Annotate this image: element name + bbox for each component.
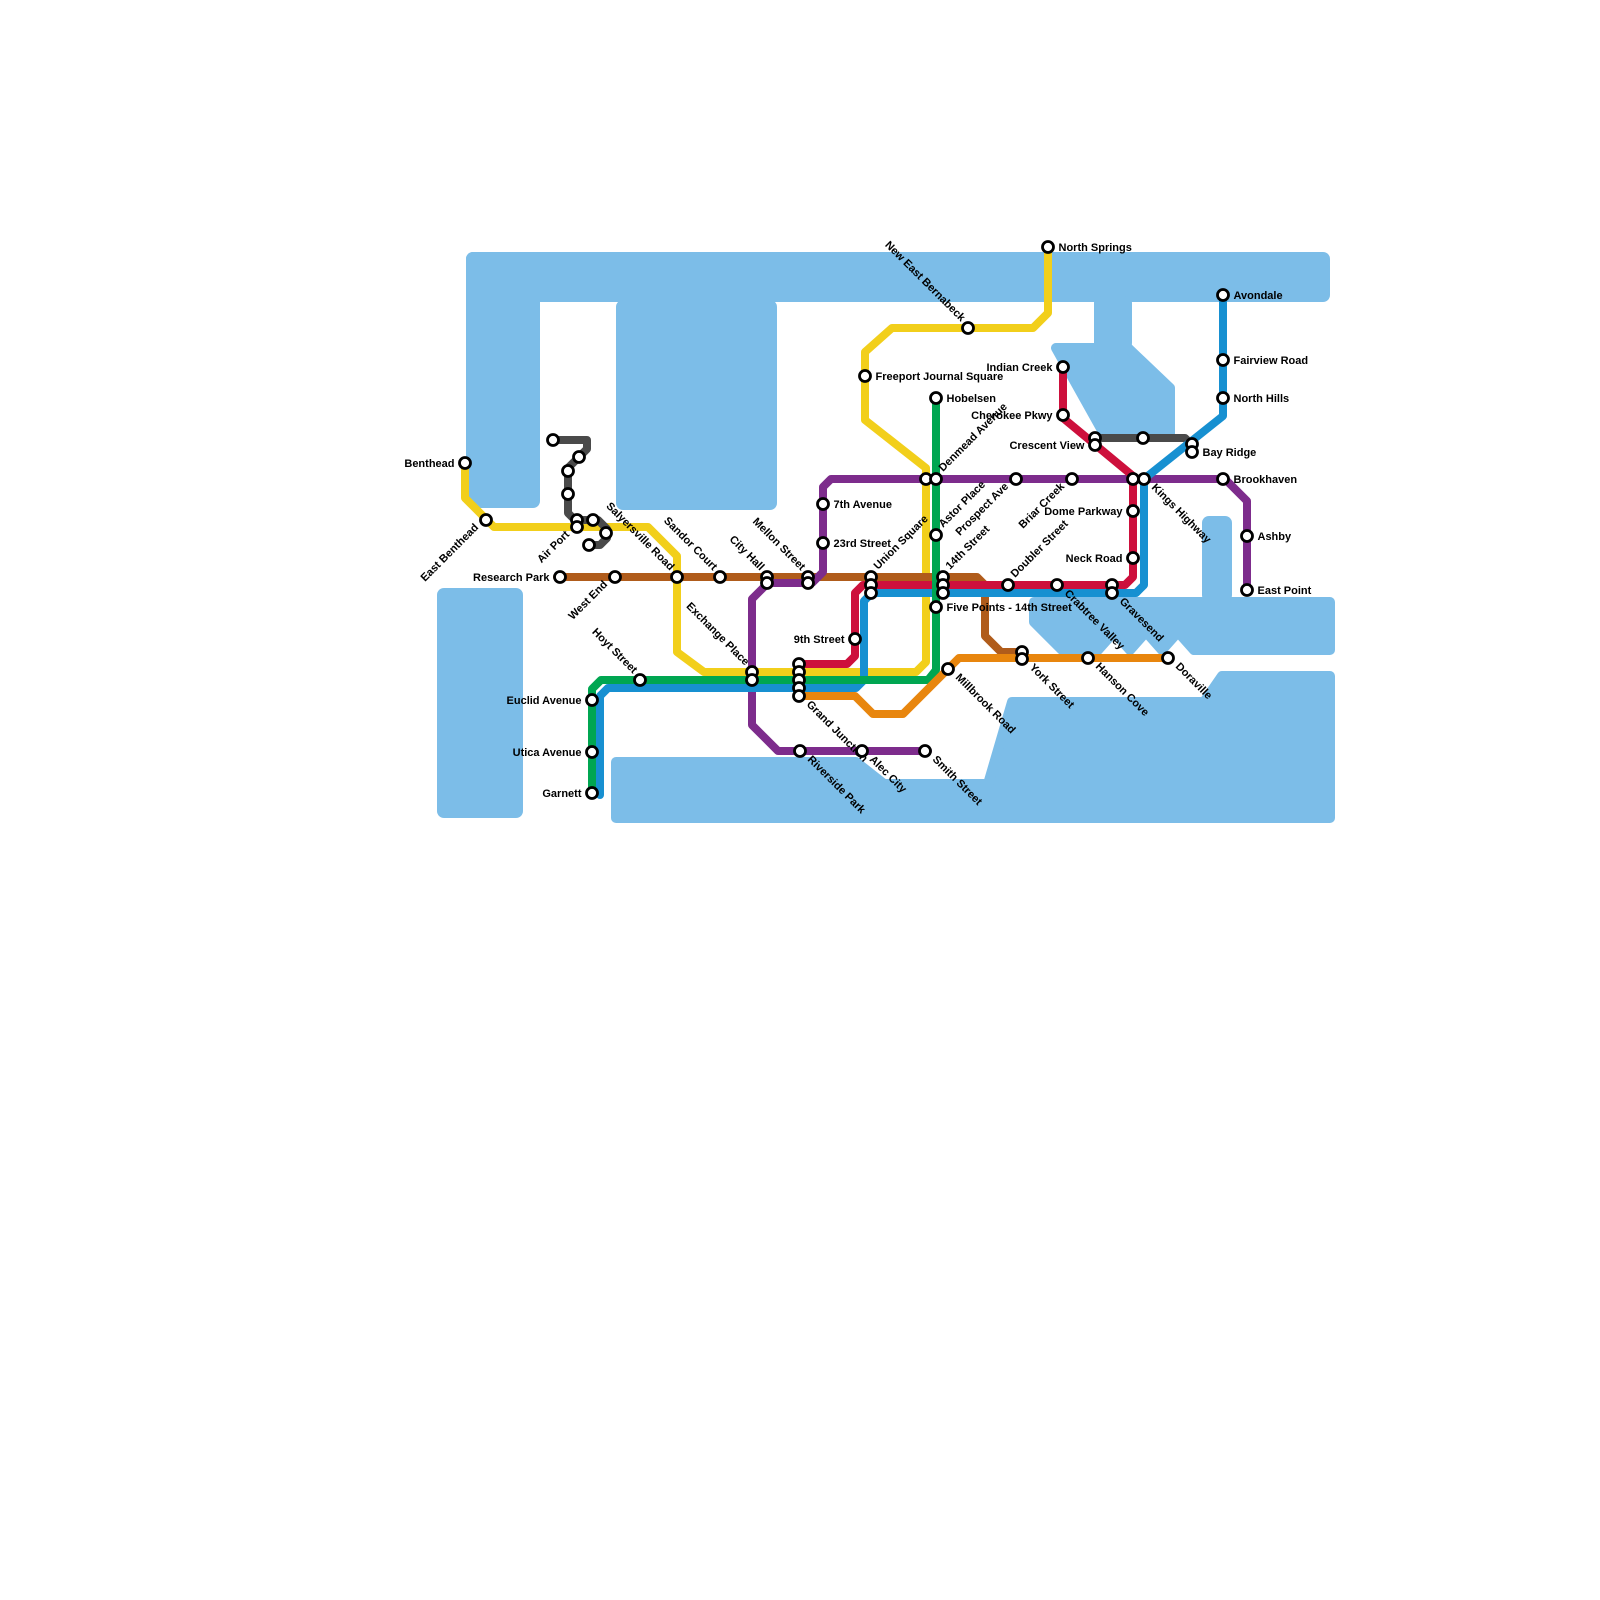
station-dot-23rd-street: [818, 538, 829, 549]
station-label-hobelsen: Hobelsen: [947, 393, 997, 405]
station-dot-prospect-ave: [1011, 474, 1022, 485]
station-label-exchange-place: Exchange Place: [684, 600, 752, 668]
station-dot-7th-avenue: [818, 499, 829, 510]
station-label-dome-parkway: Dome Parkway: [1044, 506, 1123, 518]
station-dot-doraville: [1163, 653, 1174, 664]
station-dot-north-hills: [1218, 393, 1229, 404]
station-dot-riverside-park: [795, 746, 806, 757]
station-label-euclid-avenue: Euclid Avenue: [507, 695, 582, 707]
station-label-utica-avenue: Utica Avenue: [513, 747, 582, 759]
station-dot-unnamed: [563, 489, 574, 500]
station-label-crescent-view: Crescent View: [1009, 440, 1084, 452]
station-dot-cherokee-pkwy: [1058, 410, 1069, 421]
station-dot-hoyt-street: [635, 675, 646, 686]
station-dot-city-hall: [762, 578, 773, 589]
water-body: [1094, 296, 1132, 350]
station-dot-union-square: [866, 588, 877, 599]
station-dot-14th-street: [938, 588, 949, 599]
station-dot-salyersville-road: [672, 572, 683, 583]
station-dot-denmead-avenue: [931, 474, 942, 485]
station-dot-crabtree-valley: [1052, 580, 1063, 591]
station-label-9th-street: 9th Street: [794, 634, 845, 646]
station-dot-smith-street: [920, 746, 931, 757]
station-dot-air-port: [572, 522, 583, 533]
station-label-research-park: Research Park: [473, 572, 550, 584]
station-dot-unnamed: [584, 540, 595, 551]
station-label-north-springs: North Springs: [1059, 242, 1132, 254]
station-label-fairview-road: Fairview Road: [1234, 355, 1309, 367]
station-dot-east-point: [1242, 585, 1253, 596]
station-dot-kings-highway: [1139, 474, 1150, 485]
station-dot-millbrook-road: [943, 664, 954, 675]
station-dot-dome-parkway: [1128, 506, 1139, 517]
station-label-7th-avenue: 7th Avenue: [834, 499, 892, 511]
station-dot-avondale: [1218, 290, 1229, 301]
station-label-avondale: Avondale: [1234, 290, 1283, 302]
station-label-brookhaven: Brookhaven: [1234, 474, 1298, 486]
transit-map-canvas: North SpringsNew East BernabeckFreeport …: [0, 0, 1600, 1600]
station-dot-astor-place: [931, 530, 942, 541]
station-dot-five-points-14th-street: [931, 602, 942, 613]
station-label-ashby: Ashby: [1258, 531, 1293, 543]
station-label-neck-road: Neck Road: [1066, 553, 1123, 565]
water-body: [1202, 516, 1232, 602]
station-label-doubler-street: Doubler Street: [1009, 518, 1071, 580]
station-label-garnett: Garnett: [542, 788, 581, 800]
station-label-east-point: East Point: [1258, 585, 1312, 597]
station-dot-sandor-court: [715, 572, 726, 583]
station-dot-garnett: [587, 788, 598, 799]
transit-map: North SpringsNew East BernabeckFreeport …: [0, 0, 1600, 1600]
station-dot-unnamed: [563, 466, 574, 477]
station-dot-west-end: [610, 572, 621, 583]
station-dot-alec-city: [857, 746, 868, 757]
station-dot-new-east-bernabeck: [963, 323, 974, 334]
station-label-salyersville-road: Salyersville Road: [603, 500, 676, 573]
station-dot-unnamed: [601, 528, 612, 539]
station-dot-gravesend: [1107, 588, 1118, 599]
station-dot-bay-ridge: [1187, 447, 1198, 458]
station-dot-9th-street: [850, 634, 861, 645]
station-dot-unnamed: [1138, 433, 1149, 444]
station-label-freeport-journal-square: Freeport Journal Square: [876, 371, 1004, 383]
station-label-doraville: Doraville: [1173, 661, 1214, 702]
station-dot-euclid-avenue: [587, 695, 598, 706]
station-label-indian-creek: Indian Creek: [986, 362, 1053, 374]
station-label-kings-highway: Kings Highway: [1149, 482, 1214, 547]
station-dot-brookhaven: [1218, 474, 1229, 485]
station-dot-unnamed: [588, 515, 599, 526]
station-label-east-benthead: East Benthead: [419, 522, 482, 585]
station-label-bay-ridge: Bay Ridge: [1203, 447, 1257, 459]
station-dot-unnamed: [574, 452, 585, 463]
station-label-air-port: Air Port: [535, 528, 572, 565]
station-dot-fairview-road: [1218, 355, 1229, 366]
water-body: [1056, 348, 1170, 434]
station-label-north-hills: North Hills: [1234, 393, 1290, 405]
station-dot-neck-road: [1128, 553, 1139, 564]
water-body: [466, 252, 540, 508]
station-dot-unnamed: [548, 435, 559, 446]
station-dot-east-benthead: [481, 515, 492, 526]
station-dot-york-street: [1017, 654, 1028, 665]
station-dot-grand-junction: [794, 691, 805, 702]
station-dot-freeport-journal-square: [860, 371, 871, 382]
station-dot-ashby: [1242, 531, 1253, 542]
station-dot-mellon-street: [803, 578, 814, 589]
station-dot-research-park: [555, 572, 566, 583]
station-label-five-points-14th-street: Five Points - 14th Street: [947, 602, 1073, 614]
station-dot-exchange-place: [747, 675, 758, 686]
station-label-city-hall: City Hall: [727, 534, 767, 574]
station-dot-kings-highway: [1128, 474, 1139, 485]
station-label-west-end: West End: [566, 579, 610, 623]
station-dot-doubler-street: [1003, 580, 1014, 591]
station-dot-hobelsen: [931, 393, 942, 404]
station-dot-utica-avenue: [587, 747, 598, 758]
station-dot-briar-creek: [1067, 474, 1078, 485]
station-label-23rd-street: 23rd Street: [834, 538, 892, 550]
station-dot-north-springs: [1043, 242, 1054, 253]
station-label-hoyt-street: Hoyt Street: [589, 626, 639, 676]
station-dot-crescent-view: [1090, 440, 1101, 451]
station-dot-benthead: [460, 458, 471, 469]
station-label-benthead: Benthead: [404, 458, 454, 470]
station-dot-hanson-cove: [1083, 653, 1094, 664]
station-dot-indian-creek: [1058, 362, 1069, 373]
water-body: [616, 300, 777, 510]
